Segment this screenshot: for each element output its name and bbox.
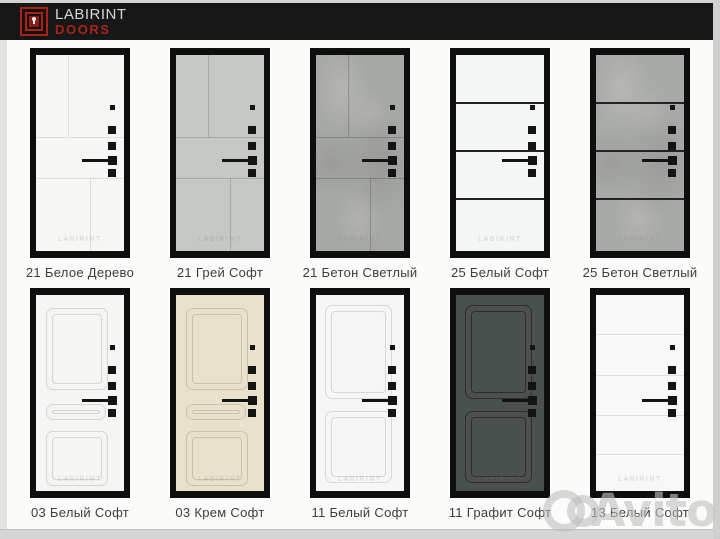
door-raised-panel — [465, 411, 532, 484]
keyhole-stem — [33, 20, 35, 24]
door-lock-square — [388, 366, 396, 374]
header-bar: LABIRINT DOORS — [0, 3, 713, 40]
door-groove-vertical — [68, 55, 69, 137]
door-groove-vertical — [348, 55, 349, 137]
door-label: 11 Графит Софт — [450, 498, 550, 527]
brand-name: LABIRINT — [55, 7, 127, 22]
door-lock-square — [390, 345, 395, 350]
door-label: 11 Белый Софт — [310, 498, 410, 527]
door-lock-square — [670, 105, 675, 110]
door-lock-square — [248, 156, 257, 165]
brand-text: LABIRINT DOORS — [55, 7, 127, 36]
door-raised-panel — [325, 411, 392, 484]
door-lock-square — [250, 105, 255, 110]
door-groove-horizontal — [596, 198, 684, 200]
door-watermark: LABIRINT — [596, 476, 684, 483]
door-card: LABIRINT 25 Бетон Светлый — [590, 48, 690, 287]
door-lock-square — [388, 382, 396, 390]
door-lock-square — [530, 105, 535, 110]
door-lock-square — [390, 105, 395, 110]
door-lock-square — [108, 382, 116, 390]
photo-edge-right — [713, 0, 720, 539]
door-card: LABIRINT 11 Графит Софт — [450, 288, 550, 527]
brand-subtitle: DOORS — [55, 23, 127, 36]
door-watermark: LABIRINT — [456, 236, 544, 243]
door-lock-square — [248, 396, 257, 405]
door-lock-square — [110, 345, 115, 350]
door-groove-horizontal — [596, 454, 684, 455]
door-card: LABIRINT 21 Бетон Светлый — [310, 48, 410, 287]
door-raised-panel — [186, 308, 248, 390]
labyrinth-core — [29, 16, 39, 27]
door-lock-square — [248, 169, 256, 177]
door-watermark: LABIRINT — [456, 476, 544, 483]
door-groove-horizontal — [316, 178, 404, 179]
door-face: LABIRINT — [36, 295, 124, 491]
door-label: 21 Белое Дерево — [30, 258, 130, 287]
door-groove-horizontal — [316, 137, 404, 138]
door-lock-square — [108, 169, 116, 177]
door-watermark: LABIRINT — [176, 476, 264, 483]
door-lock-square — [528, 409, 536, 417]
door-face: LABIRINT — [596, 55, 684, 251]
door-raised-panel — [465, 305, 532, 399]
photo-edge-left — [0, 40, 7, 529]
door-label: 25 Бетон Светлый — [590, 258, 690, 287]
door-lock-square — [248, 382, 256, 390]
door-face: LABIRINT — [456, 55, 544, 251]
door-lock-square — [388, 409, 396, 417]
door-lock-square — [388, 396, 397, 405]
door-raised-panel — [46, 308, 108, 390]
door-lock-square — [668, 126, 676, 134]
door-label: 21 Грей Софт — [170, 258, 270, 287]
door-lock-square — [668, 396, 677, 405]
door-face: LABIRINT — [176, 295, 264, 491]
door-groove-horizontal — [596, 375, 684, 376]
door-lock-square — [108, 156, 117, 165]
door-lock-square — [668, 142, 676, 150]
door-frame: LABIRINT — [450, 288, 550, 498]
door-lock-square — [530, 345, 535, 350]
door-lock-square — [528, 396, 537, 405]
door-watermark: LABIRINT — [36, 236, 124, 243]
door-lock-square — [108, 126, 116, 134]
door-groove-horizontal — [456, 102, 544, 104]
door-groove-horizontal — [36, 137, 124, 138]
door-card: LABIRINT 21 Белое Дерево — [30, 48, 130, 287]
door-lock-square — [528, 169, 536, 177]
door-lock-square — [388, 169, 396, 177]
door-lock-square — [248, 409, 256, 417]
door-lock-square — [108, 366, 116, 374]
door-lock-square — [668, 156, 677, 165]
door-groove-horizontal — [596, 102, 684, 104]
door-frame: LABIRINT — [310, 288, 410, 498]
door-lock-square — [388, 126, 396, 134]
door-label: 13 Белый Софт — [590, 498, 690, 527]
door-lock-square — [248, 366, 256, 374]
door-lock-square — [110, 105, 115, 110]
door-lock-square — [528, 142, 536, 150]
door-card: LABIRINT 25 Белый Софт — [450, 48, 550, 287]
door-lock-square — [388, 156, 397, 165]
door-watermark: LABIRINT — [316, 476, 404, 483]
door-groove-horizontal — [456, 150, 544, 152]
door-grid: LABIRINT 21 Белое Дерево LABIRINT 21 Гре… — [30, 48, 690, 527]
door-raised-panel — [186, 404, 247, 421]
door-lock-square — [668, 382, 676, 390]
door-groove-horizontal — [176, 178, 264, 179]
door-frame: LABIRINT — [170, 288, 270, 498]
door-watermark: LABIRINT — [176, 236, 264, 243]
door-lock-square — [668, 409, 676, 417]
door-frame: LABIRINT — [310, 48, 410, 258]
labyrinth-keyhole-icon — [20, 7, 48, 36]
door-lock-square — [388, 142, 396, 150]
door-groove-horizontal — [456, 198, 544, 200]
door-watermark: LABIRINT — [36, 476, 124, 483]
door-face: LABIRINT — [596, 295, 684, 491]
door-card: LABIRINT 13 Белый Софт — [590, 288, 690, 527]
photo-edge-bottom — [0, 529, 713, 539]
door-frame: LABIRINT — [590, 288, 690, 498]
door-frame: LABIRINT — [30, 48, 130, 258]
door-frame: LABIRINT — [30, 288, 130, 498]
door-groove-horizontal — [36, 178, 124, 179]
door-lock-square — [108, 396, 117, 405]
door-card: LABIRINT 21 Грей Софт — [170, 48, 270, 287]
door-label: 03 Крем Софт — [170, 498, 270, 527]
door-watermark: LABIRINT — [596, 236, 684, 243]
door-lock-square — [108, 142, 116, 150]
door-label: 03 Белый Софт — [30, 498, 130, 527]
door-frame: LABIRINT — [450, 48, 550, 258]
door-lock-square — [528, 156, 537, 165]
brand-logo: LABIRINT DOORS — [20, 7, 127, 36]
door-lock-square — [668, 169, 676, 177]
door-face: LABIRINT — [316, 55, 404, 251]
door-label: 21 Бетон Светлый — [310, 258, 410, 287]
door-lock-square — [670, 345, 675, 350]
door-raised-panel — [325, 305, 392, 399]
door-label: 25 Белый Софт — [450, 258, 550, 287]
door-groove-horizontal — [596, 150, 684, 152]
door-face: LABIRINT — [456, 295, 544, 491]
door-frame: LABIRINT — [590, 48, 690, 258]
door-card: LABIRINT 11 Белый Софт — [310, 288, 410, 527]
door-groove-horizontal — [176, 137, 264, 138]
door-raised-panel — [46, 404, 107, 421]
door-face: LABIRINT — [36, 55, 124, 251]
door-lock-square — [528, 382, 536, 390]
door-lock-square — [248, 126, 256, 134]
door-groove-vertical — [208, 55, 209, 137]
door-lock-square — [108, 409, 116, 417]
door-face: LABIRINT — [176, 55, 264, 251]
door-frame: LABIRINT — [170, 48, 270, 258]
door-card: LABIRINT 03 Крем Софт — [170, 288, 270, 527]
door-lock-square — [528, 126, 536, 134]
door-lock-square — [668, 366, 676, 374]
door-face: LABIRINT — [316, 295, 404, 491]
door-groove-horizontal — [596, 334, 684, 335]
door-card: LABIRINT 03 Белый Софт — [30, 288, 130, 527]
labyrinth-ring — [25, 12, 43, 31]
door-watermark: LABIRINT — [316, 236, 404, 243]
door-lock-square — [250, 345, 255, 350]
door-lock-square — [528, 366, 536, 374]
door-lock-square — [248, 142, 256, 150]
